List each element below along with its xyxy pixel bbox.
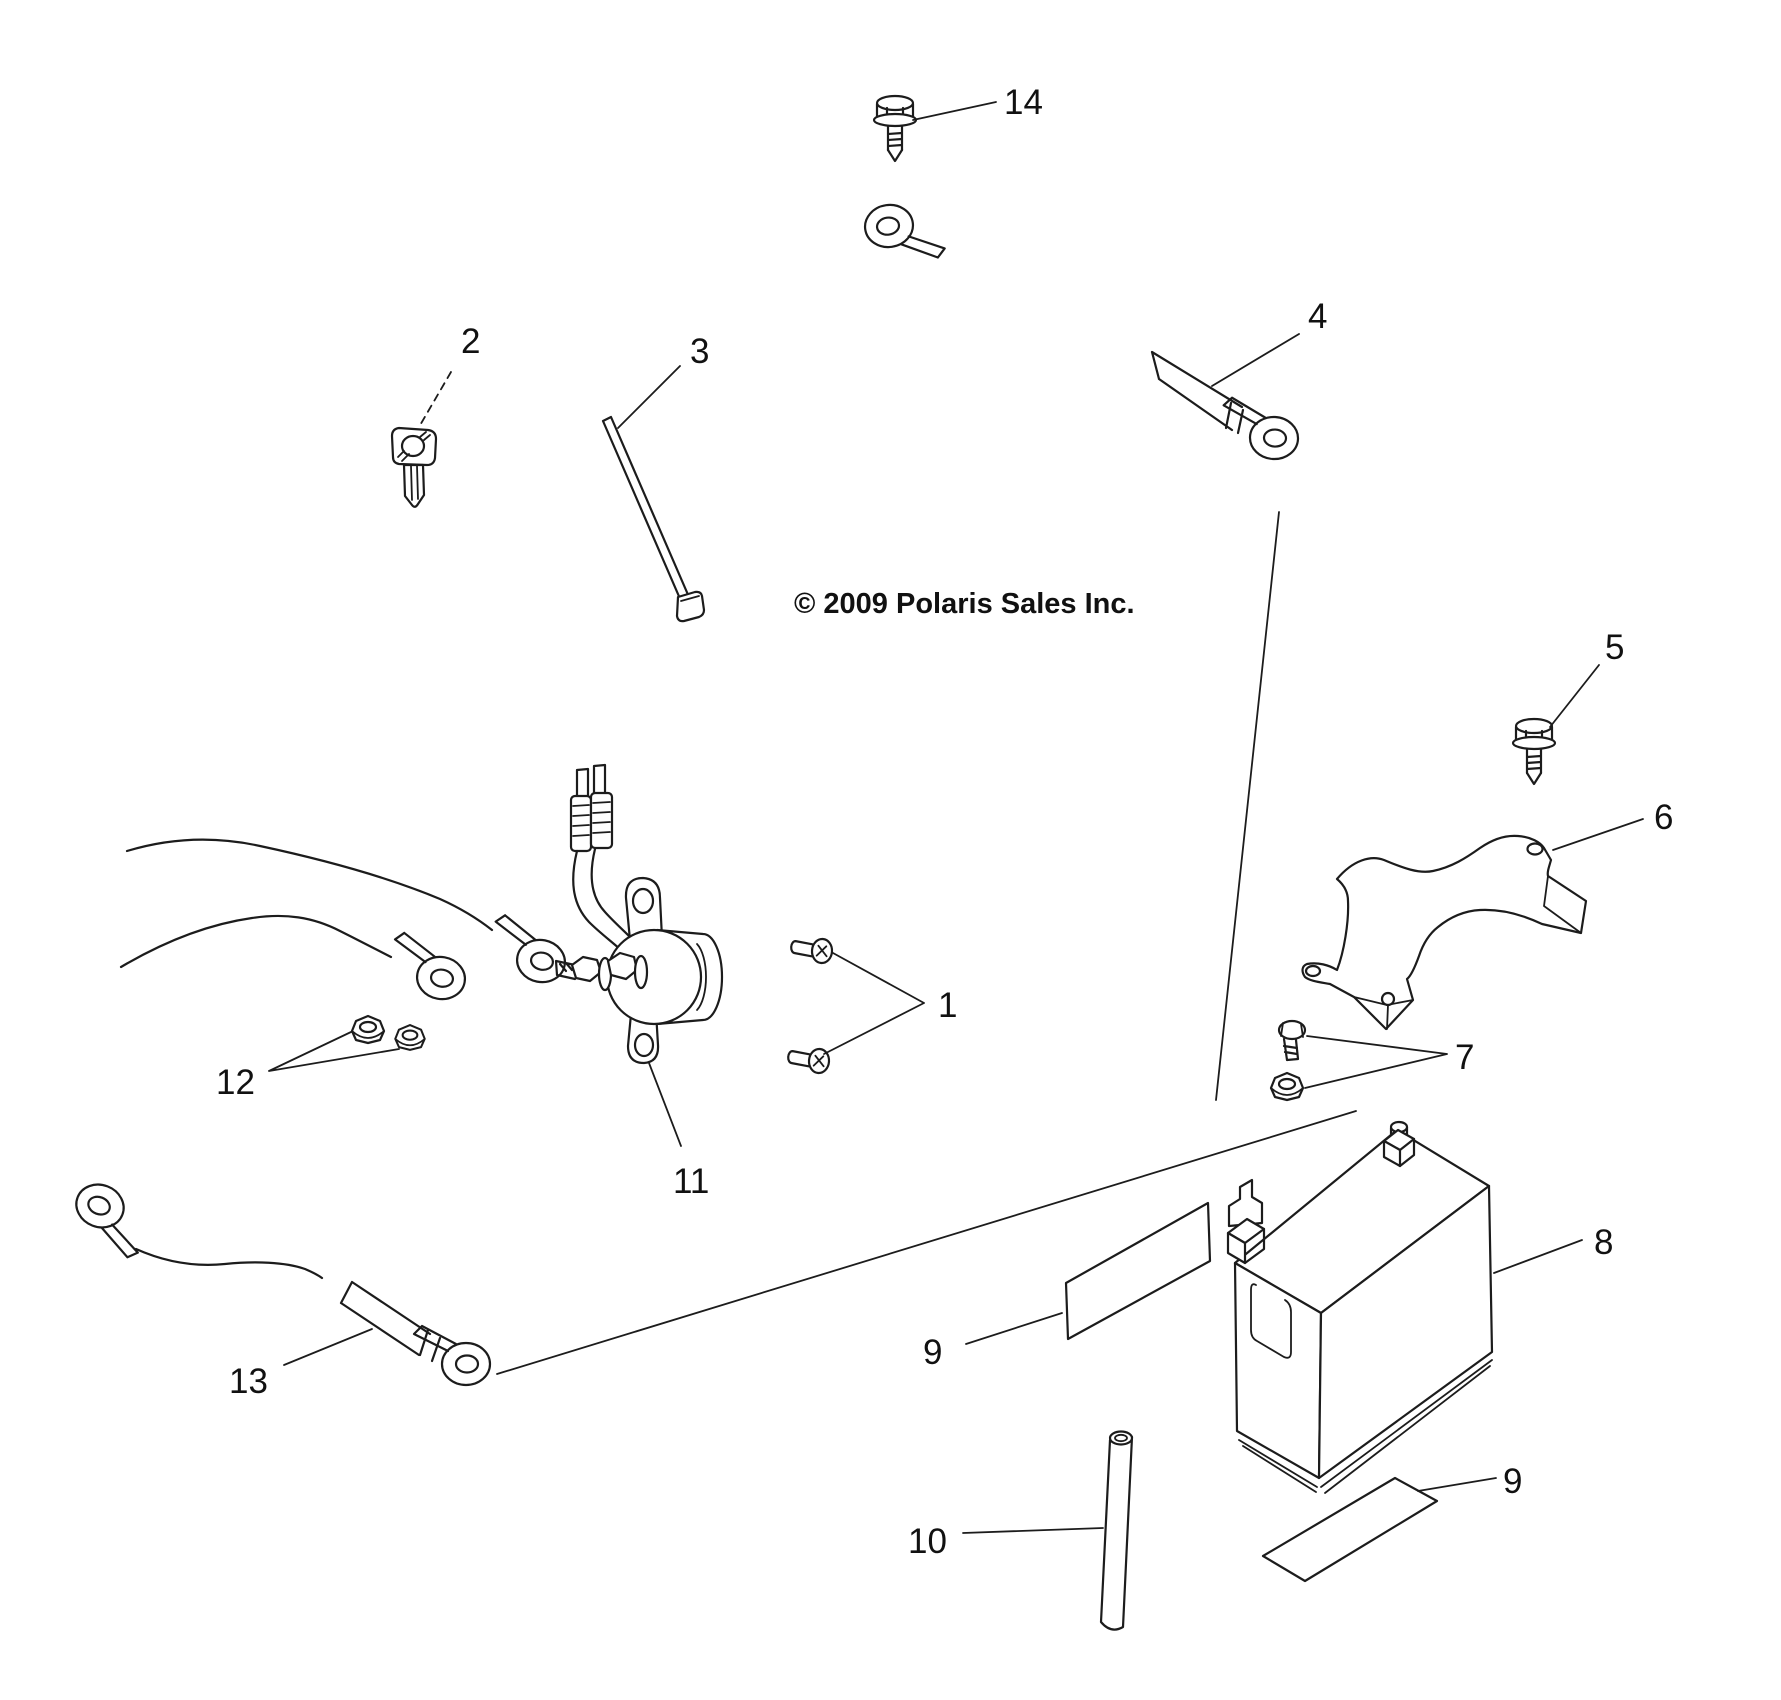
part-12-flange-nuts <box>269 1016 425 1071</box>
cable-routing-line-right <box>1216 512 1279 1100</box>
callout-10: 10 <box>908 1522 947 1561</box>
part-11-solenoid <box>556 765 722 1146</box>
parts-diagram-svg: 14 2 3 © 2009 Polaris Sales Inc. 4 5 <box>0 0 1781 1700</box>
part-10-vent-tube <box>963 1432 1132 1630</box>
part-7-bolt-and-nut <box>1271 1021 1447 1100</box>
callout-14: 14 <box>1004 83 1043 122</box>
wire-lower <box>121 916 391 967</box>
callout-13: 13 <box>229 1362 268 1401</box>
part-5-flange-bolt <box>1513 665 1599 784</box>
callout-9a: 9 <box>923 1333 942 1372</box>
callout-9b: 9 <box>1503 1462 1522 1501</box>
wire-upper <box>127 840 492 930</box>
part-8-battery <box>1228 1122 1582 1493</box>
callout-2: 2 <box>461 322 480 361</box>
callout-3: 3 <box>690 332 709 371</box>
part-2-key-blank <box>392 372 451 507</box>
callout-12: 12 <box>216 1063 255 1102</box>
diagram-canvas: 14 2 3 © 2009 Polaris Sales Inc. 4 5 <box>0 0 1781 1700</box>
callout-4: 4 <box>1308 297 1327 336</box>
callout-6: 6 <box>1654 798 1673 837</box>
part-9-label-upper <box>966 1203 1210 1344</box>
callout-7: 7 <box>1455 1038 1474 1077</box>
part-13-ground-cable <box>64 1178 490 1385</box>
part-1-screws <box>787 937 924 1074</box>
callout-8: 8 <box>1594 1223 1613 1262</box>
part-3-cable-tie <box>603 366 704 621</box>
callout-11: 11 <box>673 1162 709 1201</box>
ring-terminal-top <box>862 198 945 267</box>
copyright-text: © 2009 Polaris Sales Inc. <box>794 588 1135 620</box>
part-14-flange-bolt <box>874 96 996 161</box>
ring-terminal-left-a <box>386 932 471 1003</box>
part-9-label-lower <box>1263 1478 1496 1581</box>
part-6-hold-down-bracket <box>1303 819 1643 1029</box>
callout-5: 5 <box>1605 628 1624 667</box>
callout-1: 1 <box>938 986 957 1025</box>
part-4-positive-cable <box>1152 334 1300 460</box>
